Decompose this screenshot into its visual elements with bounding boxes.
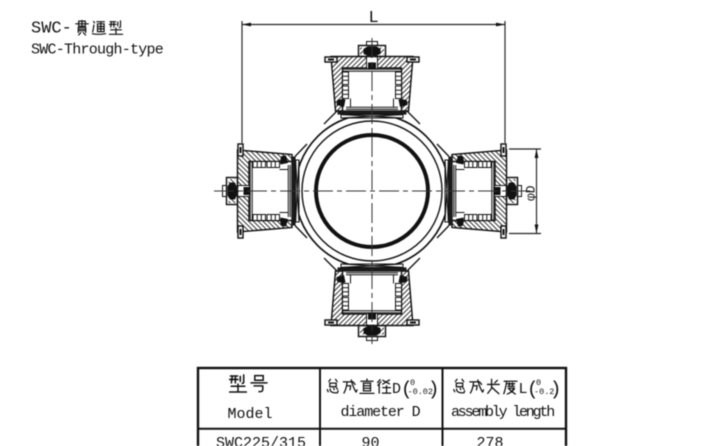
svg-text:assembly length: assembly length [451, 404, 554, 421]
svg-text:diameter D: diameter D [340, 404, 420, 421]
svg-text:SWC-Through-type: SWC-Through-type [31, 42, 164, 59]
svg-text:SWC-: SWC- [31, 20, 72, 39]
svg-text:L: L [369, 9, 379, 28]
svg-text:278: 278 [476, 435, 503, 446]
svg-text:Model: Model [227, 406, 272, 423]
svg-text:D: D [392, 381, 401, 398]
svg-text:): ) [550, 379, 561, 401]
svg-text:): ) [428, 379, 439, 401]
svg-text:SWC225/315: SWC225/315 [216, 435, 306, 446]
svg-text:φD: φD [524, 185, 539, 201]
svg-text:90: 90 [361, 435, 379, 446]
